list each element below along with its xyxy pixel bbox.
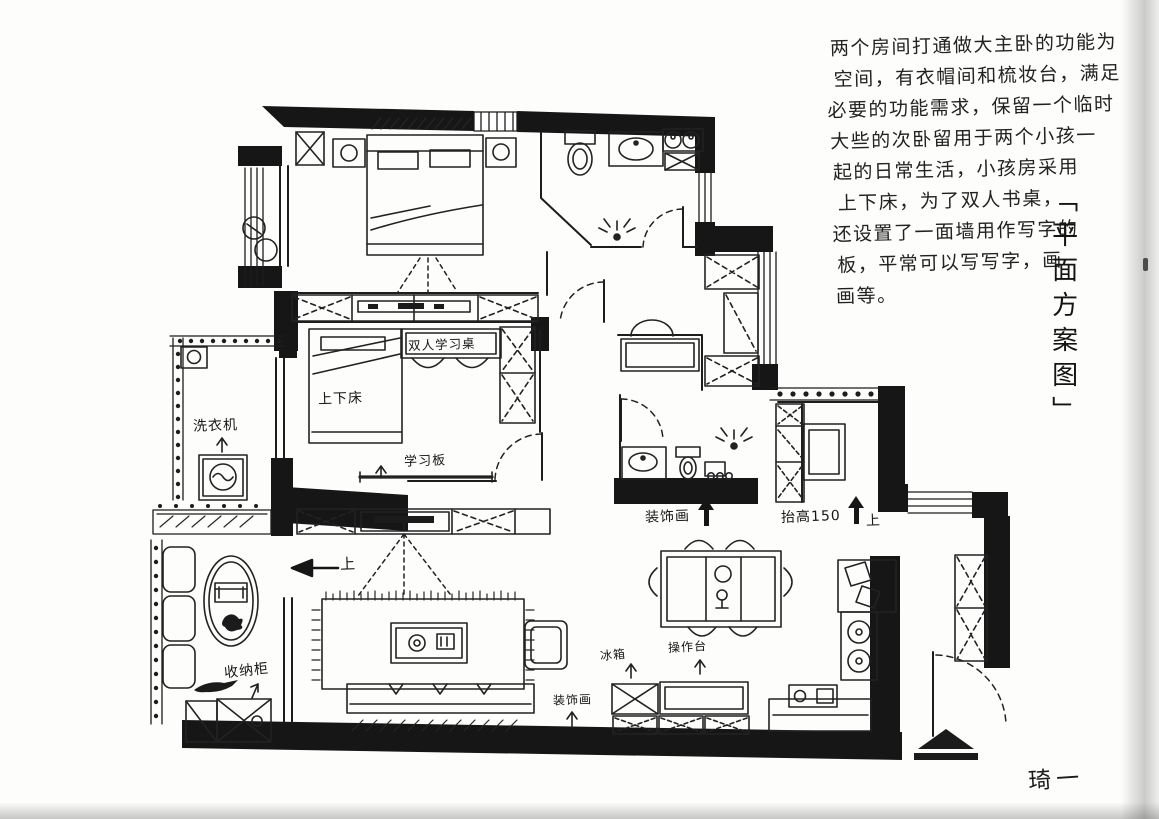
label-up-hall: 上: [866, 510, 882, 531]
scan-edge-mark: [1143, 258, 1148, 271]
left-arrow-balcony: [292, 560, 338, 576]
label-washing-machine: 洗衣机: [193, 414, 239, 436]
label-counter: 操作台: [668, 637, 708, 656]
living-room-furniture: [297, 509, 567, 713]
label-study-desk: 双人学习桌: [408, 333, 476, 354]
bathroom2-fixtures: [621, 320, 752, 479]
label-raised-floor: 抬高150: [781, 505, 841, 527]
scanned-page: 两个房间打通做大主卧的功能为 空间，有衣帽间和梳妆台，满足 必要的功能需求，保留…: [0, 0, 1159, 819]
corridor-cabinets: [705, 255, 759, 386]
label-deco-painting-living: 装饰画: [553, 690, 593, 708]
tatami-room-furniture: [776, 404, 845, 502]
scan-edge-bottom: [0, 802, 1159, 819]
label-fridge: 冰箱: [599, 645, 626, 664]
title-bracket-open: 「: [1048, 186, 1078, 221]
title-bracket-close: 」: [1048, 396, 1078, 431]
title-text: 平面方案图: [1048, 221, 1078, 396]
entry-shoe-cabinet: [955, 555, 987, 661]
kitchen-furniture: [612, 560, 896, 734]
balcony-lower-furniture: [163, 547, 271, 742]
label-study-board: 学习板: [404, 449, 447, 469]
scan-edge-right: [1121, 0, 1159, 819]
label-deco-painting-hall: 装饰画: [645, 505, 691, 527]
label-bunk-bed: 上下床: [318, 387, 364, 409]
annotation-arrows: [217, 438, 864, 726]
dining-furniture: [649, 541, 792, 637]
plan-title-vertical: 「平面方案图」: [1048, 186, 1077, 431]
master-bedroom-furniture: [243, 132, 516, 261]
bold-up-arrow-tatami: [848, 496, 864, 524]
label-up-balcony: 上: [340, 553, 357, 575]
signature: 琦一: [1027, 758, 1085, 796]
handwritten-notes: 两个房间打通做大主卧的功能为 空间，有衣帽间和梳妆台，满足 必要的功能需求，保留…: [830, 26, 1155, 313]
